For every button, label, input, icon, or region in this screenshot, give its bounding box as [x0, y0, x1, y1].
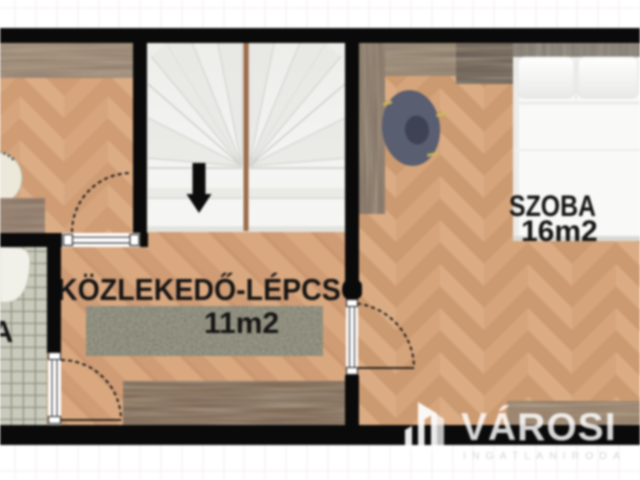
svg-text:KÖZLEKEDŐ-LÉPCSŐ: KÖZLEKEDŐ-LÉPCSŐ [57, 271, 363, 307]
svg-text:INGATLANIRODA: INGATLANIRODA [463, 450, 626, 462]
svg-text:VÁROSI: VÁROSI [461, 405, 617, 449]
svg-text:A: A [0, 314, 13, 349]
svg-text:16m2: 16m2 [521, 215, 598, 248]
svg-text:11m2: 11m2 [204, 307, 279, 340]
